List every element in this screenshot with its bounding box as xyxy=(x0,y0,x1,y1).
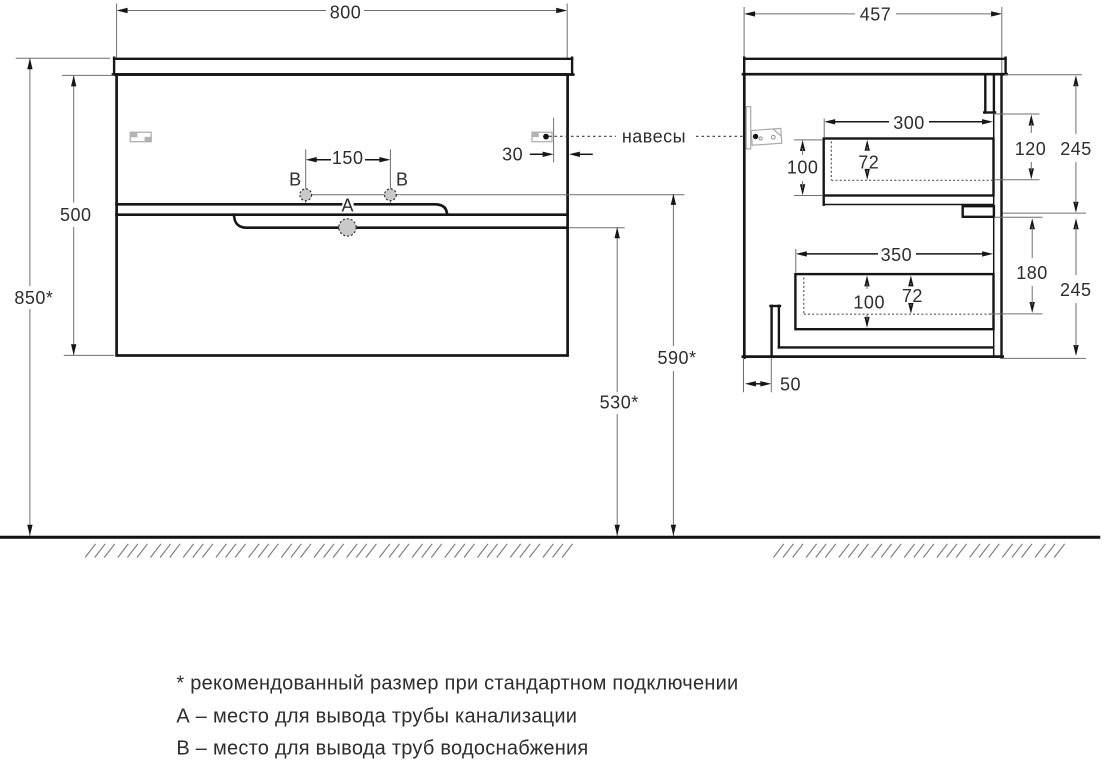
svg-text:245: 245 xyxy=(1060,139,1092,159)
svg-text:72: 72 xyxy=(902,286,923,306)
svg-text:150: 150 xyxy=(332,148,364,168)
svg-text:457: 457 xyxy=(860,5,892,25)
svg-text:530*: 530* xyxy=(600,393,639,413)
svg-text:А – место для вывода трубы кан: А – место для вывода трубы канализации xyxy=(176,706,577,728)
svg-text:350: 350 xyxy=(881,245,913,265)
svg-text:72: 72 xyxy=(858,152,879,172)
svg-text:100: 100 xyxy=(853,292,885,312)
svg-text:500: 500 xyxy=(60,205,92,225)
svg-text:100: 100 xyxy=(787,158,819,178)
svg-text:30: 30 xyxy=(502,144,523,164)
svg-text:* рекомендованный размер при с: * рекомендованный размер при стандартном… xyxy=(176,673,738,695)
svg-text:180: 180 xyxy=(1016,263,1048,283)
svg-text:В – место для вывода труб водо: В – место для вывода труб водоснабжения xyxy=(176,738,588,760)
svg-text:50: 50 xyxy=(780,375,801,395)
svg-text:590*: 590* xyxy=(657,348,696,368)
svg-text:B: B xyxy=(396,170,409,190)
svg-text:B: B xyxy=(289,170,302,190)
svg-text:A: A xyxy=(342,196,355,216)
svg-text:850*: 850* xyxy=(14,288,53,308)
svg-text:300: 300 xyxy=(893,113,925,133)
svg-text:120: 120 xyxy=(1015,139,1047,159)
svg-text:навесы: навесы xyxy=(622,127,686,147)
svg-text:245: 245 xyxy=(1060,280,1092,300)
svg-text:800: 800 xyxy=(330,3,362,23)
